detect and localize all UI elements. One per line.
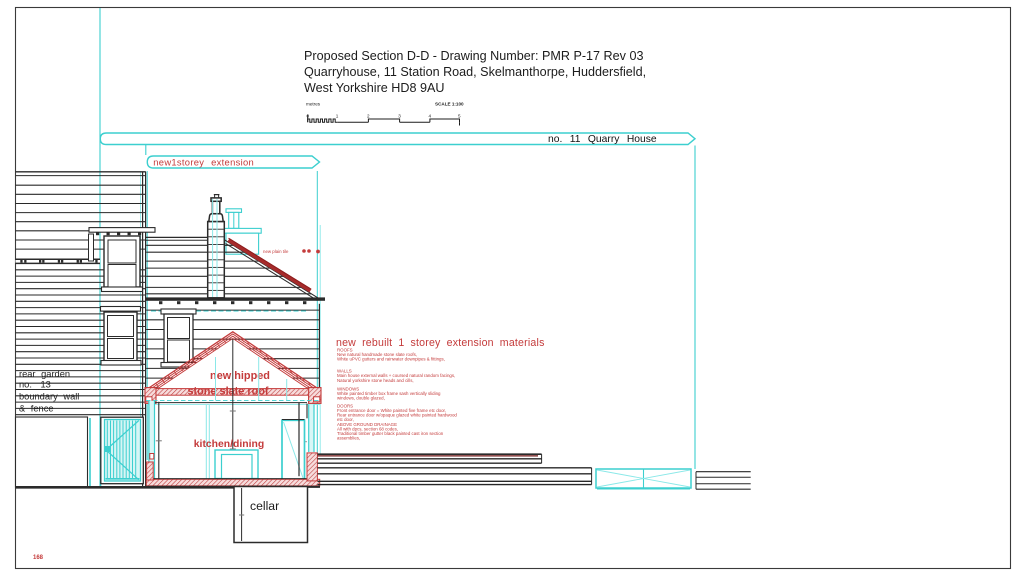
svg-text:2: 2 [367, 114, 370, 119]
svg-text:3: 3 [398, 114, 401, 119]
svg-text:& fence: & fence [19, 404, 54, 414]
svg-text:assemblies,: assemblies, [337, 435, 360, 440]
svg-text:windows, double glazed,: windows, double glazed, [337, 395, 385, 400]
svg-text:4: 4 [429, 114, 432, 119]
svg-text:168: 168 [33, 555, 44, 561]
svg-text:new1storey extension: new1storey extension [153, 156, 254, 167]
svg-text:Rear entrance door w/opaque gl: Rear entrance door w/opaque glazed white… [337, 412, 457, 417]
svg-text:White uPVC gutters and rainwat: White uPVC gutters and rainwater downpip… [337, 356, 445, 361]
svg-text:new plain tile: new plain tile [263, 249, 289, 254]
svg-text:1: 1 [336, 114, 339, 119]
svg-text:new rebuilt 1 storey extension: new rebuilt 1 storey extension materials [336, 337, 545, 349]
svg-text:no. 11 Quarry House: no. 11 Quarry House [548, 134, 657, 145]
svg-text:Natural yorkshire stone heads: Natural yorkshire stone heads and cills, [337, 378, 414, 383]
svg-text:boundary wall: boundary wall [19, 392, 79, 402]
svg-text:0: 0 [307, 114, 310, 119]
svg-text:SCALE 1:100: SCALE 1:100 [435, 102, 464, 107]
svg-text:no. 13: no. 13 [19, 380, 51, 390]
svg-text:Proposed Section D-D - Drawing: Proposed Section D-D - Drawing Number: P… [304, 49, 643, 63]
svg-text:stone slate roof: stone slate roof [187, 386, 268, 398]
svg-text:rear garden: rear garden [19, 369, 70, 379]
svg-text:new hipped: new hipped [210, 370, 270, 382]
svg-text:kitchen/dining: kitchen/dining [194, 439, 264, 450]
svg-text:metres: metres [306, 102, 321, 107]
svg-text:Quarryhouse, 11 Station Road,: Quarryhouse, 11 Station Road, Skelmantho… [304, 65, 646, 79]
svg-text:West Yorkshire HD8 9AU: West Yorkshire HD8 9AU [304, 81, 444, 95]
svg-text:5: 5 [458, 114, 461, 119]
svg-text:cellar: cellar [250, 499, 279, 513]
